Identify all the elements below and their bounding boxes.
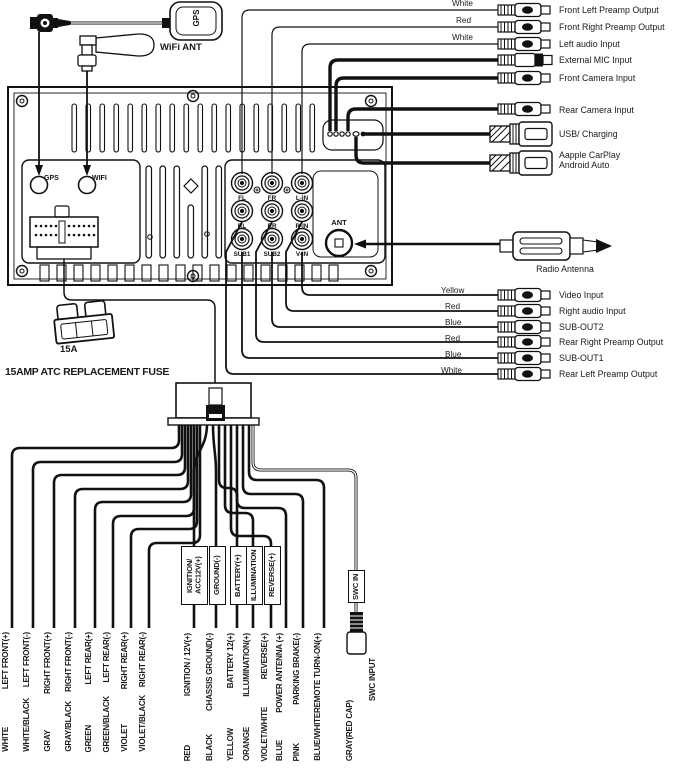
output-label-rear-camera: Rear Camera Input (559, 105, 634, 115)
gps-arrow (35, 165, 43, 176)
output-label-usb-charging: USB/ Charging (559, 129, 618, 139)
harness-connector-block (168, 383, 259, 425)
speaker-wire-function-label: LEFT FRONT(+) (1, 632, 11, 689)
power-wire-color-label: BLACK (205, 734, 215, 761)
speaker-wire-function-label: LEFT REAR(+) (84, 632, 94, 685)
wire-color-label: Yellow (441, 287, 464, 295)
output-plugs (490, 4, 552, 381)
power-wire-function-label: REVERSE(+) (260, 633, 270, 679)
speaker-wire-paths (12, 424, 200, 628)
left-panel (22, 160, 140, 263)
speaker-wire-color-label: VIOLET/BLACK (138, 695, 148, 752)
jack-label-sub1: SUB1 (234, 251, 251, 258)
aux-wire-color-label: BLUE (275, 740, 285, 761)
gps-port-label: GPS (44, 175, 59, 182)
car-stereo-wiring-diagram: GPS (0, 0, 675, 769)
power-wire-function-label: BATTERY 12(+) (226, 633, 236, 688)
wire-color-label: White (452, 0, 473, 8)
speaker-wire-function-label: LEFT REAR(-) (102, 632, 112, 682)
output-label-video-input: Video Input (559, 290, 603, 300)
jack-label-lin: L-IN (296, 195, 309, 202)
speaker-wire-function-label: RIGHT FRONT(-) (64, 632, 74, 692)
power-wire-function-label: ILLUMINATION(+) (242, 633, 252, 697)
speaker-wire-color-label: GRAY (43, 730, 53, 752)
wire-color-label: Blue (445, 319, 461, 327)
wifi-port-label: WIFI (92, 175, 107, 182)
power-wire-color-label: ORANGE (242, 727, 252, 761)
speaker-wire-function-label: LEFT FRONT(-) (22, 632, 32, 687)
wire-color-label: Red (456, 17, 471, 25)
output-label-sub-out2: SUB-OUT2 (559, 322, 603, 332)
vent-slots-middle (146, 166, 222, 258)
output-label-sub-out1: SUB-OUT1 (559, 353, 603, 363)
wifi-arrow (83, 165, 91, 176)
fuse-caption: 15AMP ATC REPLACEMENT FUSE (5, 366, 169, 378)
output-label-front-left-preamp: Front Left Preamp Output (559, 5, 659, 15)
power-wire-tag-battery: BATTERY(+) (230, 546, 247, 605)
jack-label-sub2: SUB2 (264, 251, 281, 258)
speaker-wire-color-label: WHITE (1, 727, 11, 752)
jack-label-fl: FL (238, 195, 246, 202)
power-wire-tag-ignition: IGNITION/ ACC12V(+) (181, 546, 208, 605)
speaker-wire-color-label: WHITE/BLACK (22, 698, 32, 752)
power-wire-color-label: VIOLET/WHITE (260, 707, 270, 762)
output-label-rear-left-preamp: Rear Left Preamp Output (559, 369, 657, 379)
swc-plug (347, 612, 366, 654)
power-wire-function-label: CHASSIS GROUND(-) (205, 633, 215, 711)
jack-label-rl: RL (238, 223, 247, 230)
speaker-wire-color-label: GREEN/BLACK (102, 696, 112, 752)
swc-wire-tag: SWC IN (348, 570, 365, 603)
wifi-antenna (78, 34, 154, 71)
fuse-rating: 15A (60, 344, 77, 355)
speaker-wire-function-label: RIGHT REAR(+) (120, 632, 130, 689)
aux-wire-function-label: PARKING BRAKE(-) (292, 633, 302, 705)
jack-label-fr: FR (268, 195, 277, 202)
accessory-wires (330, 60, 498, 163)
ant-arrow (354, 240, 366, 249)
ant-port-label: ANT (331, 218, 347, 227)
output-label-external-mic: External MIC Input (559, 55, 632, 65)
harness-socket (30, 206, 98, 259)
speaker-wire-color-label: GREEN (84, 725, 94, 752)
speaker-wire-function-label: RIGHT FRONT(+) (43, 632, 53, 694)
ant-port (326, 230, 352, 256)
wire-color-label: Blue (445, 351, 461, 359)
vent-slots-top (72, 104, 315, 152)
power-wire-color-label: YELLOW (226, 728, 236, 761)
jack-label-rin: R-IN (296, 223, 309, 230)
gps-antenna-label: GPS (192, 9, 201, 27)
radio-antenna-plug (500, 232, 612, 260)
aux-wire-function-label: REMOTE TURN-ON(+) (313, 633, 323, 713)
fuse (53, 300, 115, 344)
screws (17, 91, 377, 282)
wire-color-label: White (452, 34, 473, 42)
output-label-front-right-preamp: Front Right Preamp Output (559, 22, 665, 32)
wire-color-label: White (441, 367, 462, 375)
power-wire-tag-ground: GROUND(-) (209, 546, 226, 605)
aux-wire-function-label: POWER ANTENNA (+) (275, 633, 285, 713)
aux-wire-color-label: PINK (292, 743, 302, 761)
wire-color-label: Red (445, 303, 460, 311)
output-label-carplay: Aapple CarPlay Android Auto (559, 150, 620, 171)
gps-antenna: GPS (30, 2, 222, 40)
speaker-wire-color-label: GRAY/BLACK (64, 701, 74, 752)
swc-function-label: SWC INPUT (368, 658, 378, 701)
wifi-antenna-label: WiFi ANT (160, 42, 202, 53)
power-wire-tag-reverse: REVERSE(+) (264, 546, 281, 605)
power-wire-color-label: RED (183, 745, 193, 761)
right-panel (225, 160, 385, 263)
jack-label-vin: V-IN (296, 251, 309, 258)
power-wire-function-label: IGNITION / 12V(+) (183, 633, 193, 696)
speaker-wire-color-label: VIOLET (120, 724, 130, 752)
speaker-wire-function-label: RIGHT REAR(-) (138, 632, 148, 687)
aux-wire-color-label: BLUE/WHITE (313, 713, 323, 761)
radio-antenna-label: Radio Antenna (523, 264, 607, 274)
output-label-left-audio-input: Left audio Input (559, 39, 620, 49)
swc-color-label: GRAY(RED CAP) (345, 700, 355, 761)
power-wire-tag-illumination: ILLUMINATION (246, 546, 263, 605)
wire-color-label: Red (445, 335, 460, 343)
output-label-front-camera: Front Camera Input (559, 73, 635, 83)
output-label-rear-right-preamp: Rear Right Preamp Output (559, 337, 663, 347)
output-label-right-audio-input: Right audio Input (559, 306, 626, 316)
jack-label-rr: RR (267, 223, 277, 230)
